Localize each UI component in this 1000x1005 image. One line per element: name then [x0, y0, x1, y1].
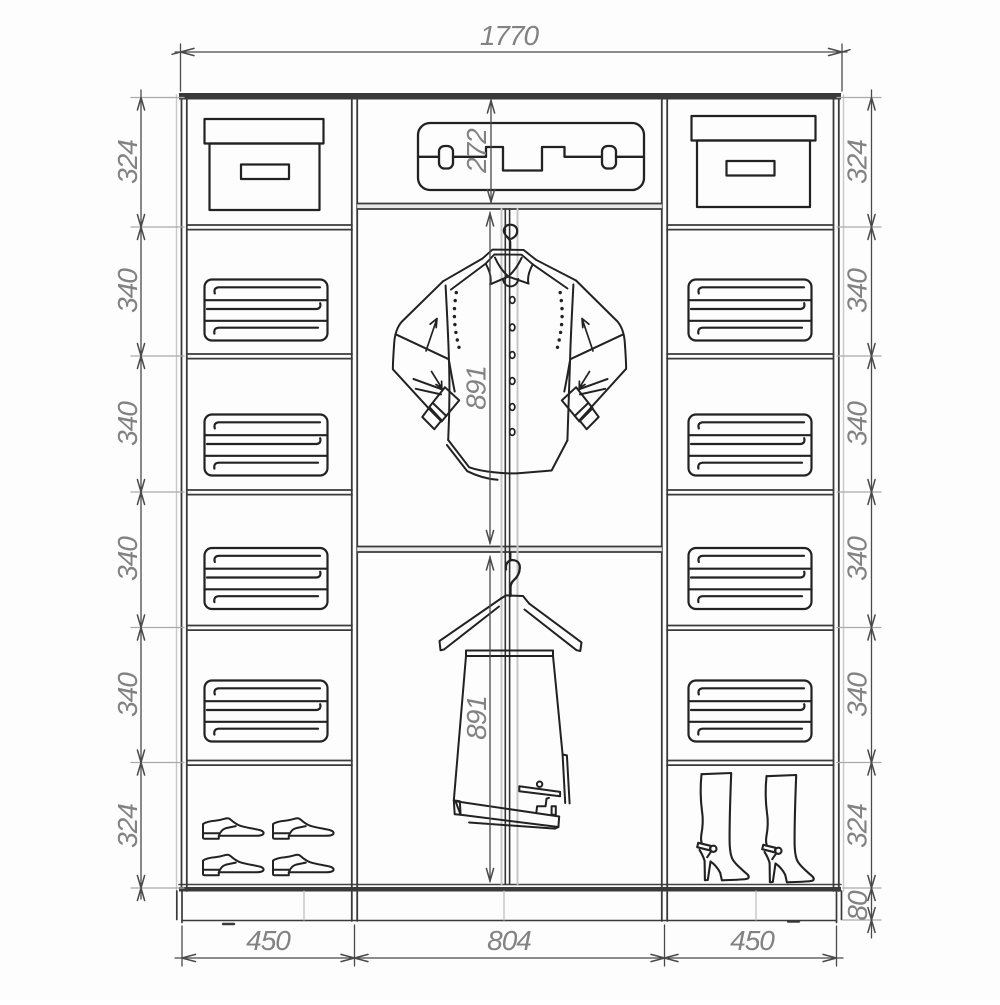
svg-text:340: 340	[112, 401, 143, 446]
svg-text:324: 324	[112, 140, 143, 184]
svg-text:1770: 1770	[480, 20, 540, 51]
svg-text:340: 340	[842, 672, 873, 717]
svg-text:891: 891	[461, 366, 492, 410]
svg-text:891: 891	[461, 696, 492, 740]
svg-text:340: 340	[112, 268, 143, 313]
svg-text:340: 340	[842, 268, 873, 313]
svg-text:450: 450	[246, 925, 291, 956]
svg-text:340: 340	[842, 536, 873, 581]
svg-text:804: 804	[487, 925, 531, 956]
svg-text:450: 450	[730, 925, 775, 956]
svg-text:324: 324	[842, 804, 873, 848]
svg-text:80: 80	[842, 890, 873, 921]
svg-text:340: 340	[112, 672, 143, 717]
svg-text:340: 340	[112, 536, 143, 581]
svg-text:324: 324	[842, 140, 873, 184]
svg-text:324: 324	[112, 804, 143, 848]
svg-text:340: 340	[842, 401, 873, 446]
svg-text:272: 272	[461, 128, 492, 174]
